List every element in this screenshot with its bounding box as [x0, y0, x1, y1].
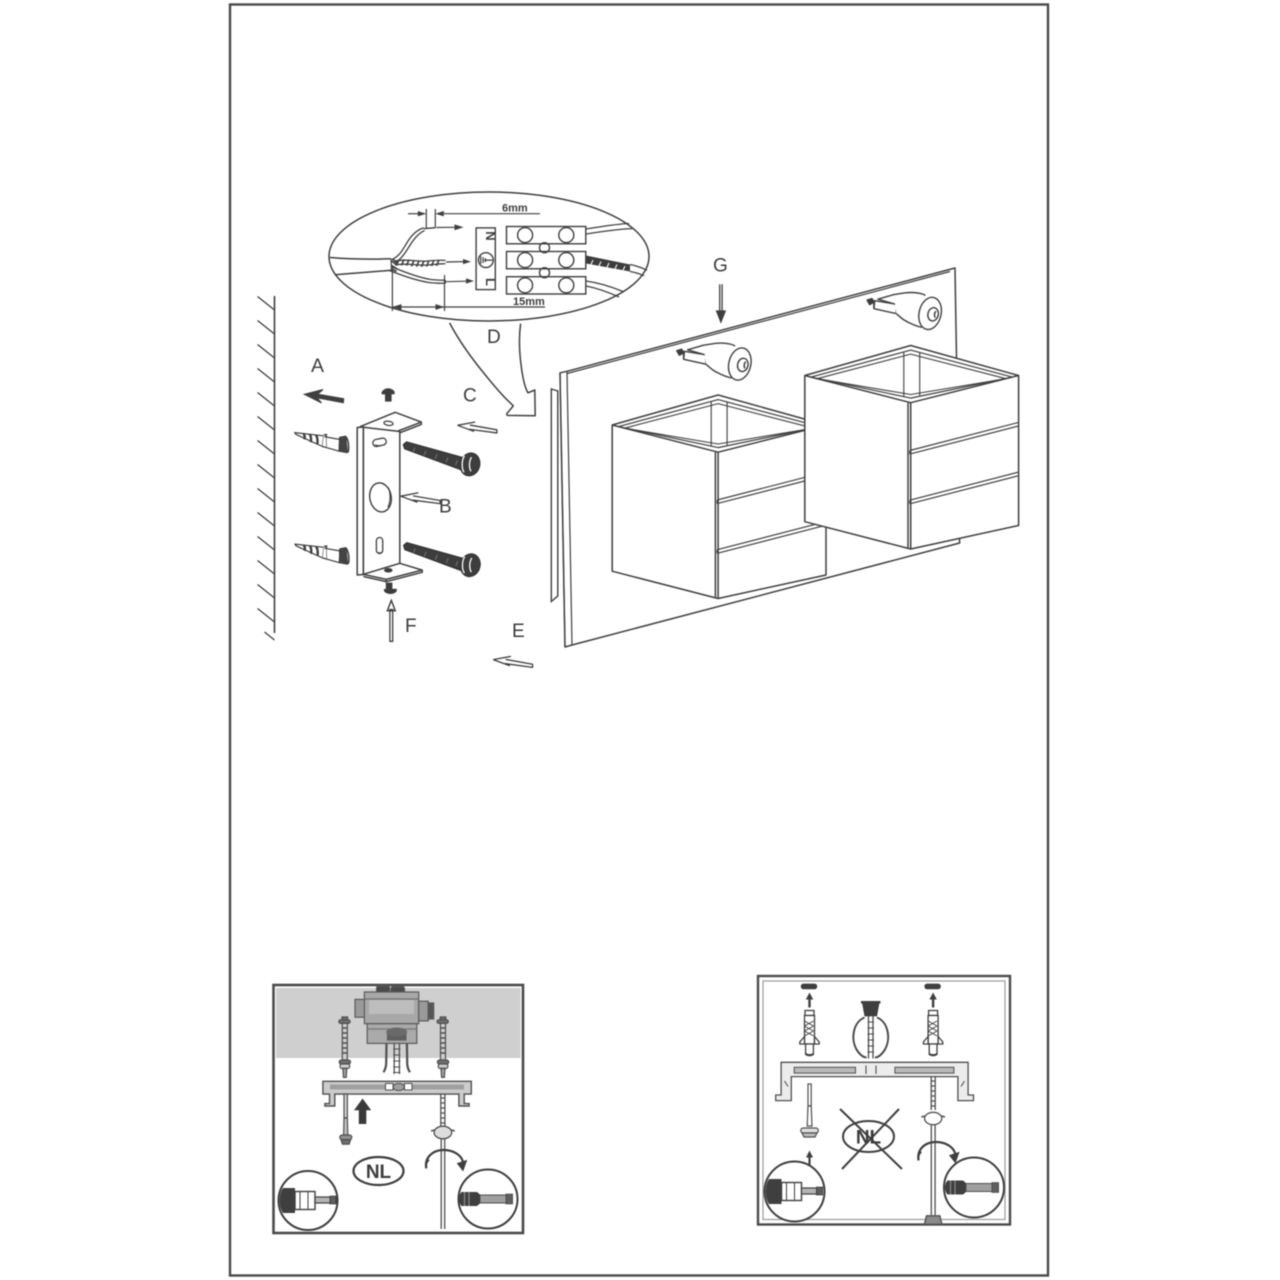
svg-text:D: D [487, 327, 501, 348]
svg-text:N: N [483, 231, 498, 240]
svg-text:A: A [311, 355, 324, 377]
svg-text:NL: NL [856, 1128, 882, 1149]
svg-text:F: F [405, 616, 417, 637]
svg-text:G: G [713, 256, 728, 277]
svg-text:15mm: 15mm [513, 296, 545, 308]
svg-text:NL: NL [366, 1162, 392, 1183]
svg-text:6mm: 6mm [502, 203, 528, 215]
svg-text:C: C [463, 386, 477, 407]
svg-text:E: E [512, 621, 525, 642]
svg-text:L: L [483, 278, 498, 286]
svg-text:B: B [439, 497, 452, 518]
